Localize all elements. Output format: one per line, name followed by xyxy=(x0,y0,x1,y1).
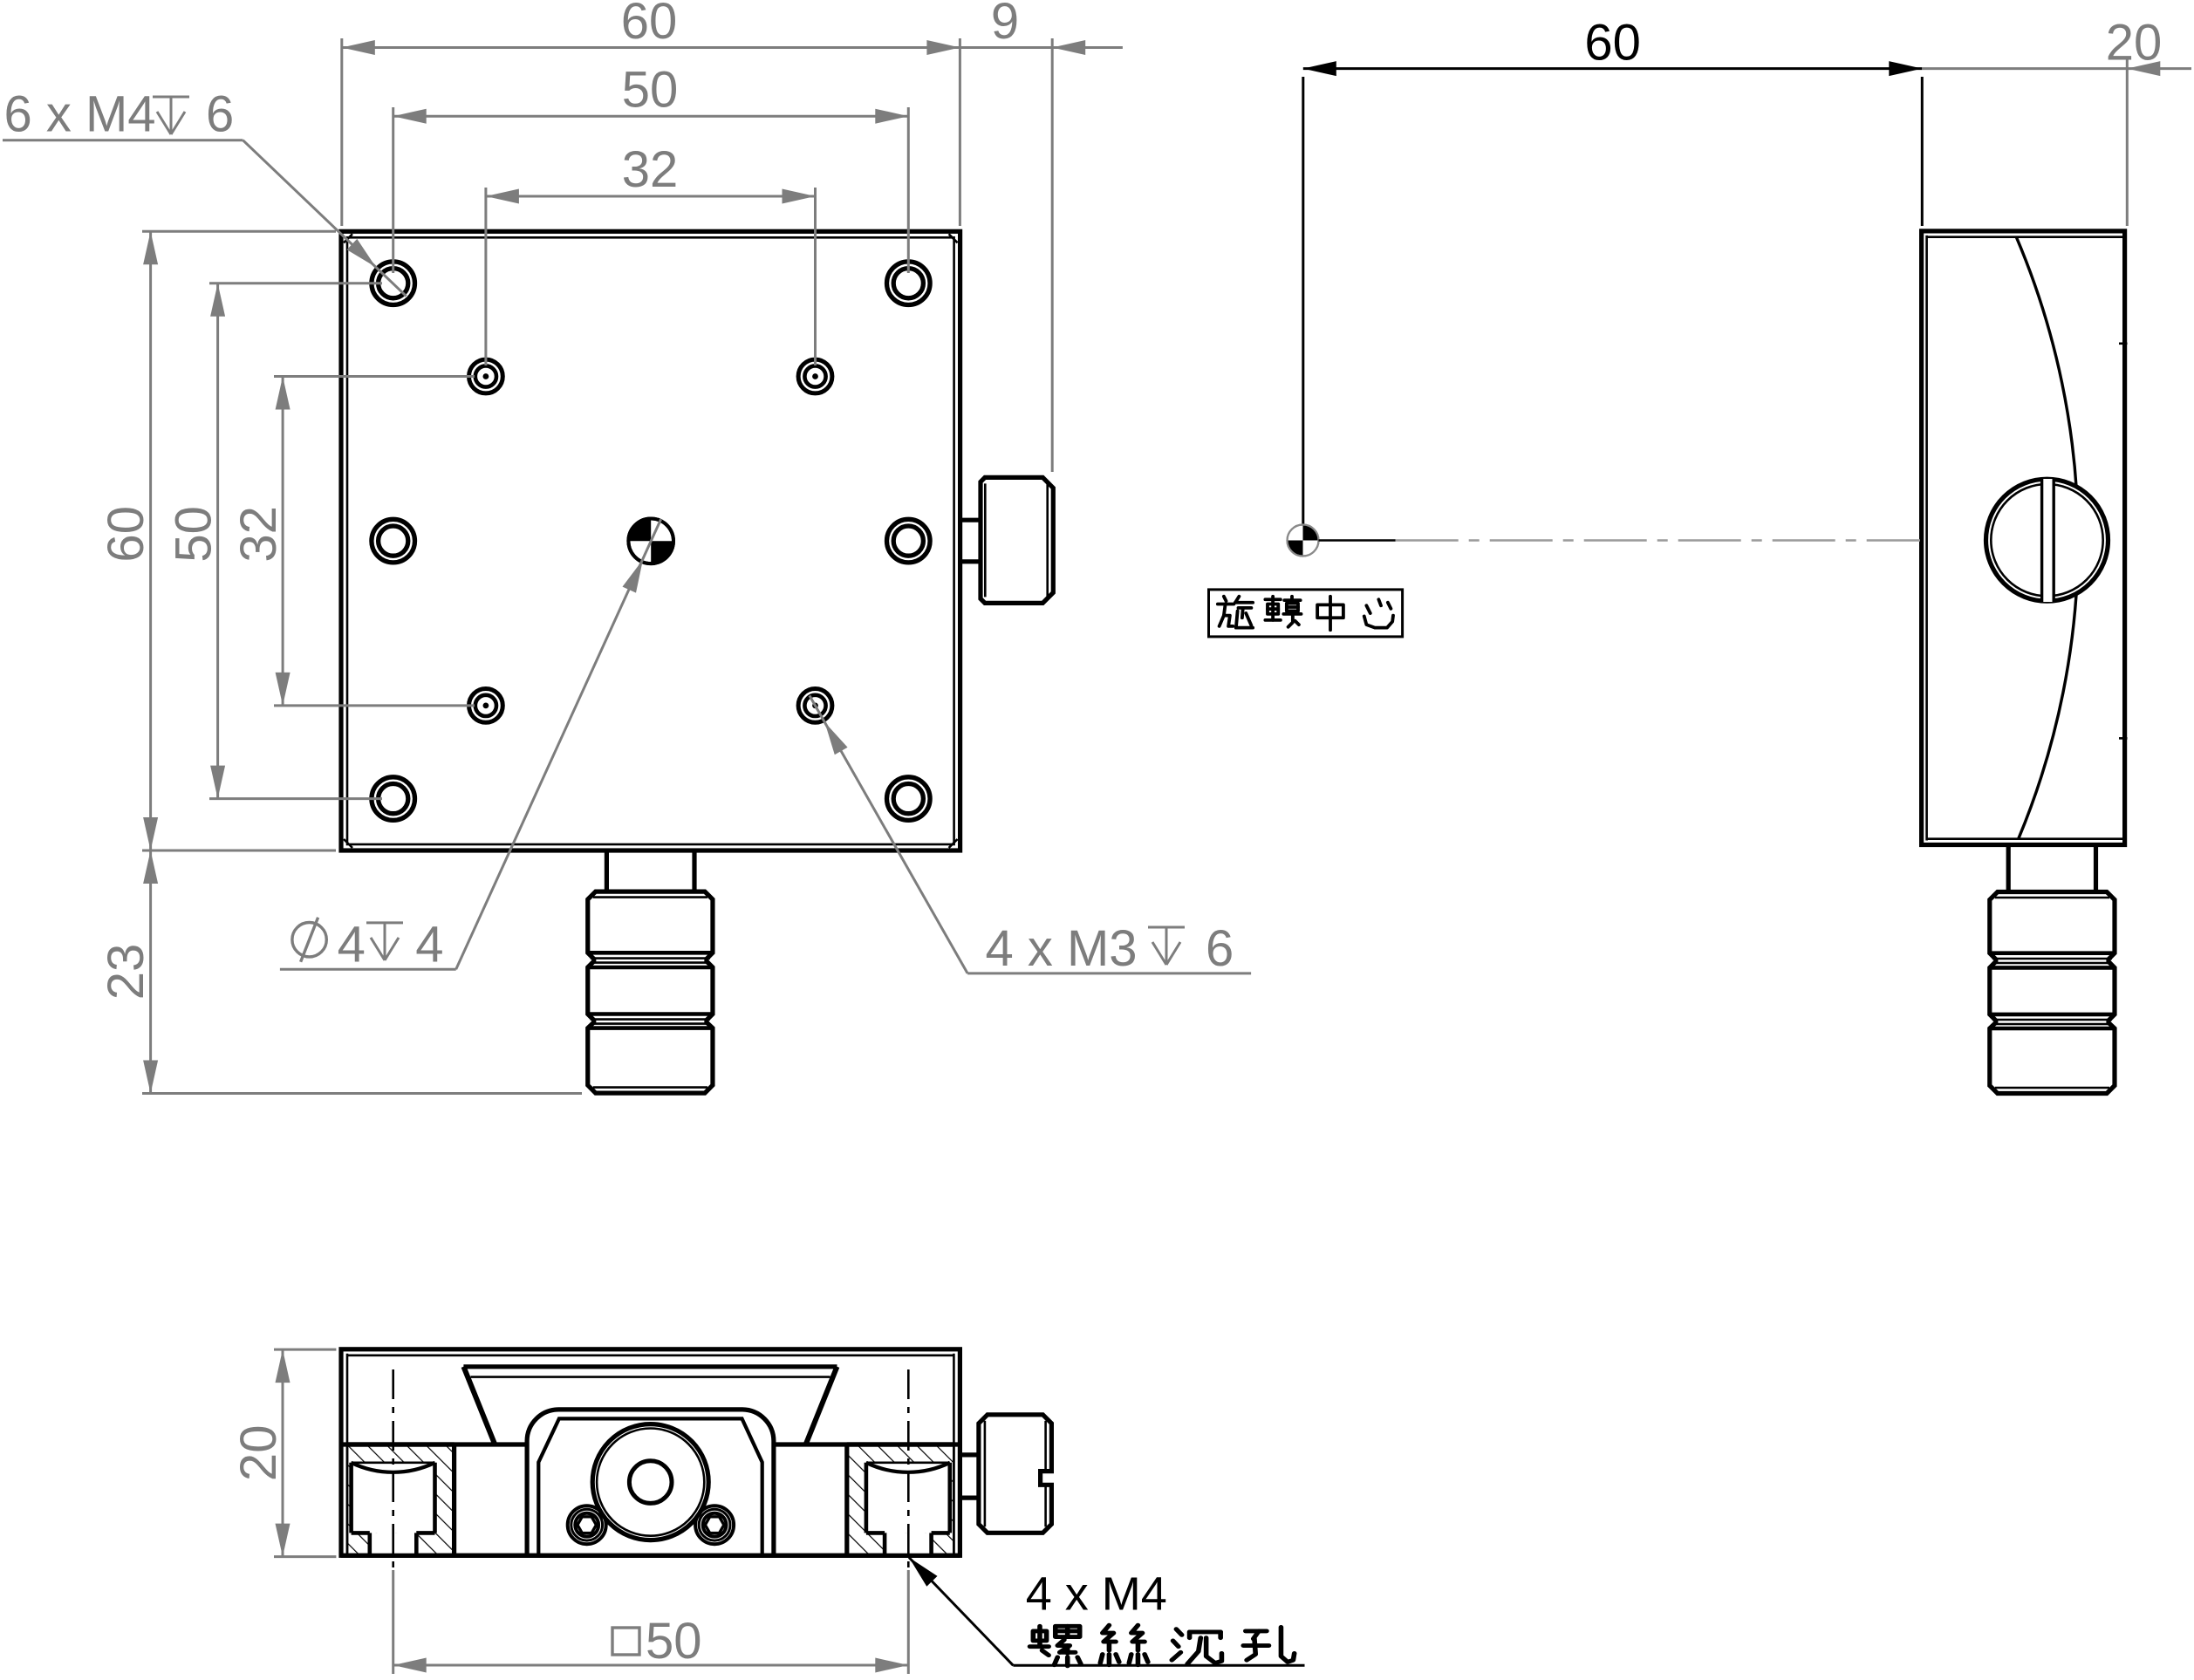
svg-text:50: 50 xyxy=(646,1613,702,1670)
svg-text:6: 6 xyxy=(206,86,234,143)
svg-text:4 x M4: 4 x M4 xyxy=(1026,1568,1167,1621)
svg-text:50: 50 xyxy=(166,506,222,563)
svg-text:6 x M4: 6 x M4 xyxy=(4,86,156,143)
svg-text:50: 50 xyxy=(622,62,679,119)
svg-text:20: 20 xyxy=(2106,15,2163,72)
svg-text:4 x M3: 4 x M3 xyxy=(986,920,1138,977)
svg-text:32: 32 xyxy=(230,506,287,563)
svg-text:4: 4 xyxy=(415,917,443,973)
svg-text:9: 9 xyxy=(991,0,1019,50)
svg-text:23: 23 xyxy=(98,944,154,1000)
svg-text:60: 60 xyxy=(98,506,154,563)
svg-text:60: 60 xyxy=(621,0,678,50)
svg-text:4: 4 xyxy=(338,917,366,973)
svg-text:6: 6 xyxy=(1206,920,1234,977)
svg-text:32: 32 xyxy=(622,141,679,198)
svg-text:20: 20 xyxy=(230,1425,287,1482)
svg-text:60: 60 xyxy=(1584,15,1641,72)
